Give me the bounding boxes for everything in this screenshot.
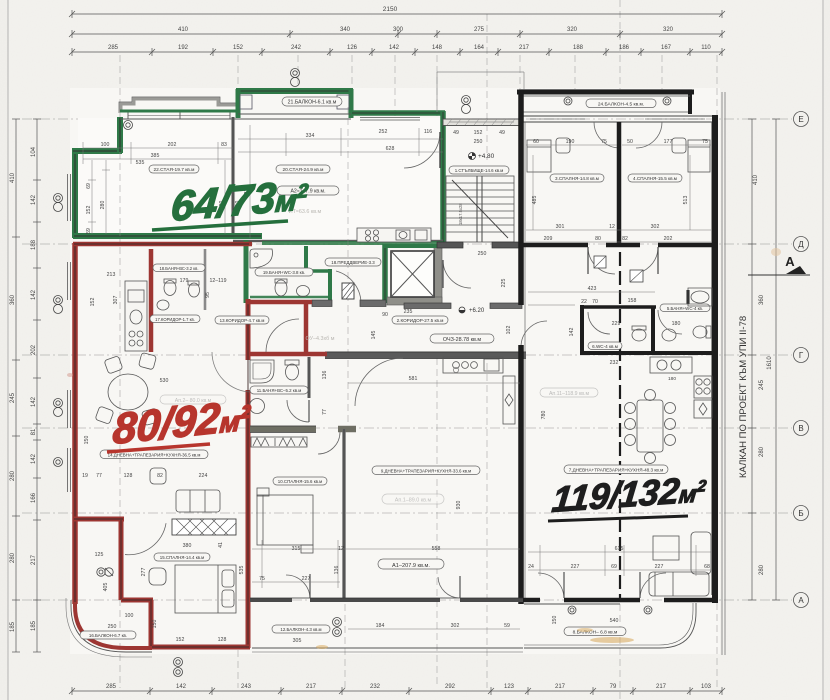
svg-text:280: 280 <box>100 201 106 210</box>
svg-text:180: 180 <box>668 376 676 382</box>
svg-text:103: 103 <box>701 684 712 690</box>
svg-text:136: 136 <box>322 371 328 380</box>
svg-text:КАЛКАН ПО ПРОЕКТ КЪМ УПИ II-78: КАЛКАН ПО ПРОЕКТ КЪМ УПИ II-78 <box>738 316 749 478</box>
svg-text:77: 77 <box>322 409 328 415</box>
svg-text:142: 142 <box>31 194 37 205</box>
svg-text:213: 213 <box>107 272 116 278</box>
svg-text:19.БАНЯ+WC-3.8 кв.: 19.БАНЯ+WC-3.8 кв. <box>263 270 305 275</box>
svg-text:285: 285 <box>108 45 119 51</box>
svg-text:59: 59 <box>86 228 92 234</box>
svg-text:152: 152 <box>233 45 244 51</box>
svg-text:235: 235 <box>404 309 413 315</box>
svg-text:А1–207.9 кв.м.: А1–207.9 кв.м. <box>392 563 430 569</box>
svg-text:Д: Д <box>798 240 804 249</box>
svg-text:152: 152 <box>86 206 92 215</box>
svg-text:90: 90 <box>382 312 388 318</box>
svg-text:142: 142 <box>176 684 187 690</box>
svg-text:628: 628 <box>386 146 395 152</box>
svg-text:152: 152 <box>90 298 96 307</box>
svg-text:245: 245 <box>10 392 16 403</box>
svg-text:209: 209 <box>544 236 553 242</box>
svg-text:13.КОРИДОР-4.7 кв.м: 13.КОРИДОР-4.7 кв.м <box>220 318 265 323</box>
svg-text:410: 410 <box>753 174 759 185</box>
svg-text:320: 320 <box>567 27 578 33</box>
svg-text:334: 334 <box>306 133 315 139</box>
svg-text:69: 69 <box>86 183 92 189</box>
svg-text:302: 302 <box>451 623 460 629</box>
svg-text:166: 166 <box>31 492 37 503</box>
svg-text:22: 22 <box>581 299 587 305</box>
svg-text:59: 59 <box>504 623 510 629</box>
svg-text:125: 125 <box>95 552 104 558</box>
svg-text:110: 110 <box>701 45 711 51</box>
svg-text:75: 75 <box>259 576 265 582</box>
svg-text:69: 69 <box>611 564 617 570</box>
svg-text:142: 142 <box>31 453 37 464</box>
svg-text:82: 82 <box>157 473 163 479</box>
svg-text:280: 280 <box>759 446 765 457</box>
svg-text:250: 250 <box>474 139 483 145</box>
svg-text:188: 188 <box>573 45 584 51</box>
svg-text:188: 188 <box>31 239 37 250</box>
svg-text:16.БАЛКОН-6.7 кв.: 16.БАЛКОН-6.7 кв. <box>89 633 127 638</box>
svg-text:615: 615 <box>615 546 624 552</box>
svg-text:150: 150 <box>152 620 158 629</box>
svg-text:142: 142 <box>31 289 37 300</box>
svg-text:12–119: 12–119 <box>210 278 227 284</box>
svg-text:380: 380 <box>183 543 192 549</box>
svg-text:4.СПАЛНЯ-15.5 кв.м: 4.СПАЛНЯ-15.5 кв.м <box>633 176 677 181</box>
svg-text:Б: Б <box>798 509 803 518</box>
svg-text:150: 150 <box>84 436 90 445</box>
svg-text:24: 24 <box>528 564 534 570</box>
svg-text:340: 340 <box>340 27 351 33</box>
svg-text:5.БАНЯ+WC-4 кв.: 5.БАНЯ+WC-4 кв. <box>667 306 703 311</box>
svg-text:21.БАЛКОН-6.1 кв.м: 21.БАЛКОН-6.1 кв.м <box>288 100 337 106</box>
svg-text:1610: 1610 <box>767 356 773 370</box>
svg-text:Ап.11–118.9 кв.м: Ап.11–118.9 кв.м <box>549 391 589 397</box>
svg-text:116: 116 <box>424 129 432 135</box>
svg-text:ОЧЗ-28.78 кв.м: ОЧЗ-28.78 кв.м <box>443 337 481 343</box>
svg-text:Ап.1–89.0 кв.м: Ап.1–89.0 кв.м <box>395 498 432 504</box>
svg-text:24.БАЛКОН-4.5 кв.м.: 24.БАЛКОН-4.5 кв.м. <box>598 102 644 108</box>
svg-text:217: 217 <box>306 684 317 690</box>
svg-text:41: 41 <box>218 542 224 548</box>
svg-text:10.СПАЛНЯ-15.6 кв.м: 10.СПАЛНЯ-15.6 кв.м <box>278 479 322 484</box>
svg-text:6.WC-4 кв.м: 6.WC-4 кв.м <box>592 344 618 349</box>
svg-text:102: 102 <box>506 326 512 335</box>
svg-text:202: 202 <box>664 236 673 242</box>
svg-text:385: 385 <box>151 153 160 159</box>
svg-text:930: 930 <box>456 501 462 510</box>
svg-text:82: 82 <box>622 236 628 242</box>
svg-text:581: 581 <box>409 376 418 382</box>
svg-text:А: А <box>785 254 795 269</box>
svg-text:315: 315 <box>292 546 301 552</box>
svg-text:243: 243 <box>241 684 252 690</box>
svg-text:80: 80 <box>595 236 601 242</box>
svg-text:558: 558 <box>432 546 441 552</box>
svg-text:285: 285 <box>106 684 117 690</box>
svg-text:18.БАНЯ+ВС-3.2 кв.: 18.БАНЯ+ВС-3.2 кв. <box>159 266 198 271</box>
svg-text:1.СТЪЛБИЩЕ-14.6 кв.м: 1.СТЪЛБИЩЕ-14.6 кв.м <box>455 168 504 173</box>
svg-text:75: 75 <box>702 139 708 145</box>
svg-text:360: 360 <box>759 294 765 305</box>
svg-text:12.БАЛКОН-4.3 кв.м: 12.БАЛКОН-4.3 кв.м <box>280 627 321 632</box>
svg-text:305: 305 <box>293 638 302 644</box>
svg-text:540: 540 <box>610 618 619 624</box>
svg-text:Е: Е <box>798 115 803 124</box>
svg-text:300: 300 <box>393 27 404 33</box>
svg-text:+6.20: +6.20 <box>469 308 485 314</box>
svg-text:142: 142 <box>569 328 575 337</box>
svg-text:81: 81 <box>31 428 37 435</box>
svg-text:18х17.5х28: 18х17.5х28 <box>458 203 463 225</box>
svg-text:75: 75 <box>601 139 607 145</box>
svg-text:410: 410 <box>178 27 189 33</box>
svg-text:158: 158 <box>628 298 637 304</box>
svg-text:70: 70 <box>592 299 598 305</box>
svg-text:202: 202 <box>31 344 37 355</box>
svg-text:49: 49 <box>499 130 505 136</box>
svg-text:123: 123 <box>504 684 515 690</box>
svg-text:232: 232 <box>610 360 619 366</box>
svg-text:20.СТАЯ-24.9 кв.м: 20.СТАЯ-24.9 кв.м <box>283 167 324 173</box>
svg-text:148: 148 <box>432 45 443 51</box>
svg-text:320: 320 <box>663 27 674 33</box>
svg-text:152: 152 <box>176 637 185 643</box>
svg-text:104: 104 <box>31 146 37 157</box>
svg-text:217: 217 <box>555 684 566 690</box>
svg-text:217: 217 <box>519 45 530 51</box>
svg-text:+4.80: +4.80 <box>478 153 495 160</box>
svg-text:142: 142 <box>31 396 37 407</box>
svg-text:11.БАНЯ+ВС–5.2 кв.м: 11.БАНЯ+ВС–5.2 кв.м <box>257 388 302 393</box>
svg-text:301: 301 <box>556 224 565 230</box>
svg-text:128: 128 <box>218 637 227 643</box>
svg-text:17.КОРИДОР-1.7 кв.: 17.КОРИДОР-1.7 кв. <box>155 317 195 322</box>
svg-text:68: 68 <box>704 564 710 570</box>
svg-text:179: 179 <box>180 278 189 284</box>
svg-text:12: 12 <box>609 224 615 230</box>
svg-text:152: 152 <box>474 130 483 136</box>
svg-text:780: 780 <box>541 411 547 420</box>
svg-text:2150: 2150 <box>383 6 398 13</box>
svg-text:19: 19 <box>82 473 88 479</box>
svg-text:535: 535 <box>136 160 145 166</box>
svg-text:15.СПАЛНЯ-14.4 кв.м: 15.СПАЛНЯ-14.4 кв.м <box>160 555 204 560</box>
svg-text:410: 410 <box>10 172 16 183</box>
svg-text:292: 292 <box>445 684 456 690</box>
svg-text:250: 250 <box>478 251 487 257</box>
svg-text:360: 360 <box>10 294 16 305</box>
svg-text:217: 217 <box>31 554 37 565</box>
svg-text:79: 79 <box>610 684 617 690</box>
svg-text:167: 167 <box>661 45 672 51</box>
svg-text:252: 252 <box>379 129 388 135</box>
svg-text:530: 530 <box>160 378 169 384</box>
svg-text:126: 126 <box>347 45 358 51</box>
svg-text:185: 185 <box>31 620 37 631</box>
svg-text:95: 95 <box>205 292 211 298</box>
svg-text:535: 535 <box>239 566 245 575</box>
svg-text:280: 280 <box>759 564 765 575</box>
svg-text:277: 277 <box>141 568 147 577</box>
svg-text:185: 185 <box>10 621 16 632</box>
svg-text:485: 485 <box>532 196 538 205</box>
svg-text:14.ДНЕВНА+ТРАПЕЗАРИЯ+КУХНЯ-36.: 14.ДНЕВНА+ТРАПЕЗАРИЯ+КУХНЯ-36.5 кв.м <box>108 453 201 458</box>
svg-text:217: 217 <box>656 684 667 690</box>
svg-text:280: 280 <box>10 552 16 563</box>
svg-text:136: 136 <box>334 566 340 575</box>
svg-text:164: 164 <box>474 45 485 51</box>
svg-text:227: 227 <box>655 564 664 570</box>
svg-text:229: 229 <box>612 321 621 327</box>
svg-text:50: 50 <box>627 139 633 145</box>
svg-text:128: 128 <box>124 473 133 479</box>
svg-text:177: 177 <box>664 139 673 145</box>
svg-text:60: 60 <box>533 139 539 145</box>
svg-text:А: А <box>798 596 804 605</box>
svg-text:423: 423 <box>588 286 597 292</box>
svg-text:184: 184 <box>376 623 385 629</box>
svg-text:225: 225 <box>501 279 507 288</box>
svg-text:302: 302 <box>651 224 660 230</box>
svg-text:100: 100 <box>125 613 134 619</box>
svg-text:250: 250 <box>108 624 117 630</box>
svg-text:Г: Г <box>799 351 804 360</box>
svg-text:145: 145 <box>371 331 377 340</box>
svg-text:9.ДНЕВНА+ТРАПЕЗАРИЯ+КУХНЯ-33.6: 9.ДНЕВНА+ТРАПЕЗАРИЯ+КУХНЯ-33.6 кв.м <box>381 469 471 474</box>
svg-text:В: В <box>798 424 803 433</box>
svg-text:18.ПРЕДДВЕРИЕ-3.3: 18.ПРЕДДВЕРИЕ-3.3 <box>331 260 375 265</box>
svg-text:227: 227 <box>571 564 580 570</box>
svg-text:3.СПАЛНЯ-14.8 кв.м: 3.СПАЛНЯ-14.8 кв.м <box>555 176 599 181</box>
svg-text:12: 12 <box>338 546 344 552</box>
svg-text:192: 192 <box>178 45 189 51</box>
svg-text:22.СТАЯ-19.7 кв.м: 22.СТАЯ-19.7 кв.м <box>154 167 195 173</box>
svg-text:100: 100 <box>101 142 110 148</box>
svg-text:242: 242 <box>291 45 302 51</box>
svg-text:83: 83 <box>221 142 227 148</box>
svg-text:49: 49 <box>453 130 459 136</box>
svg-text:190: 190 <box>566 139 575 145</box>
svg-text:186: 186 <box>619 45 630 51</box>
svg-text:77: 77 <box>96 473 102 479</box>
svg-text:150: 150 <box>552 616 558 625</box>
svg-text:227: 227 <box>302 576 311 582</box>
svg-text:275: 275 <box>474 27 485 33</box>
svg-text:245: 245 <box>759 379 765 390</box>
svg-text:307: 307 <box>113 296 119 305</box>
svg-text:142: 142 <box>389 45 400 51</box>
svg-text:224: 224 <box>199 473 208 479</box>
svg-text:280: 280 <box>10 470 16 481</box>
svg-text:513: 513 <box>683 196 689 205</box>
svg-text:2.КОРИДОР-27.5 кв.м: 2.КОРИДОР-27.5 кв.м <box>397 318 444 323</box>
svg-text:180: 180 <box>672 321 681 327</box>
svg-text:ОУ–4.3хб м: ОУ–4.3хб м <box>306 336 335 342</box>
svg-text:202: 202 <box>168 142 177 148</box>
svg-text:405: 405 <box>103 583 109 592</box>
svg-text:232: 232 <box>370 684 381 690</box>
